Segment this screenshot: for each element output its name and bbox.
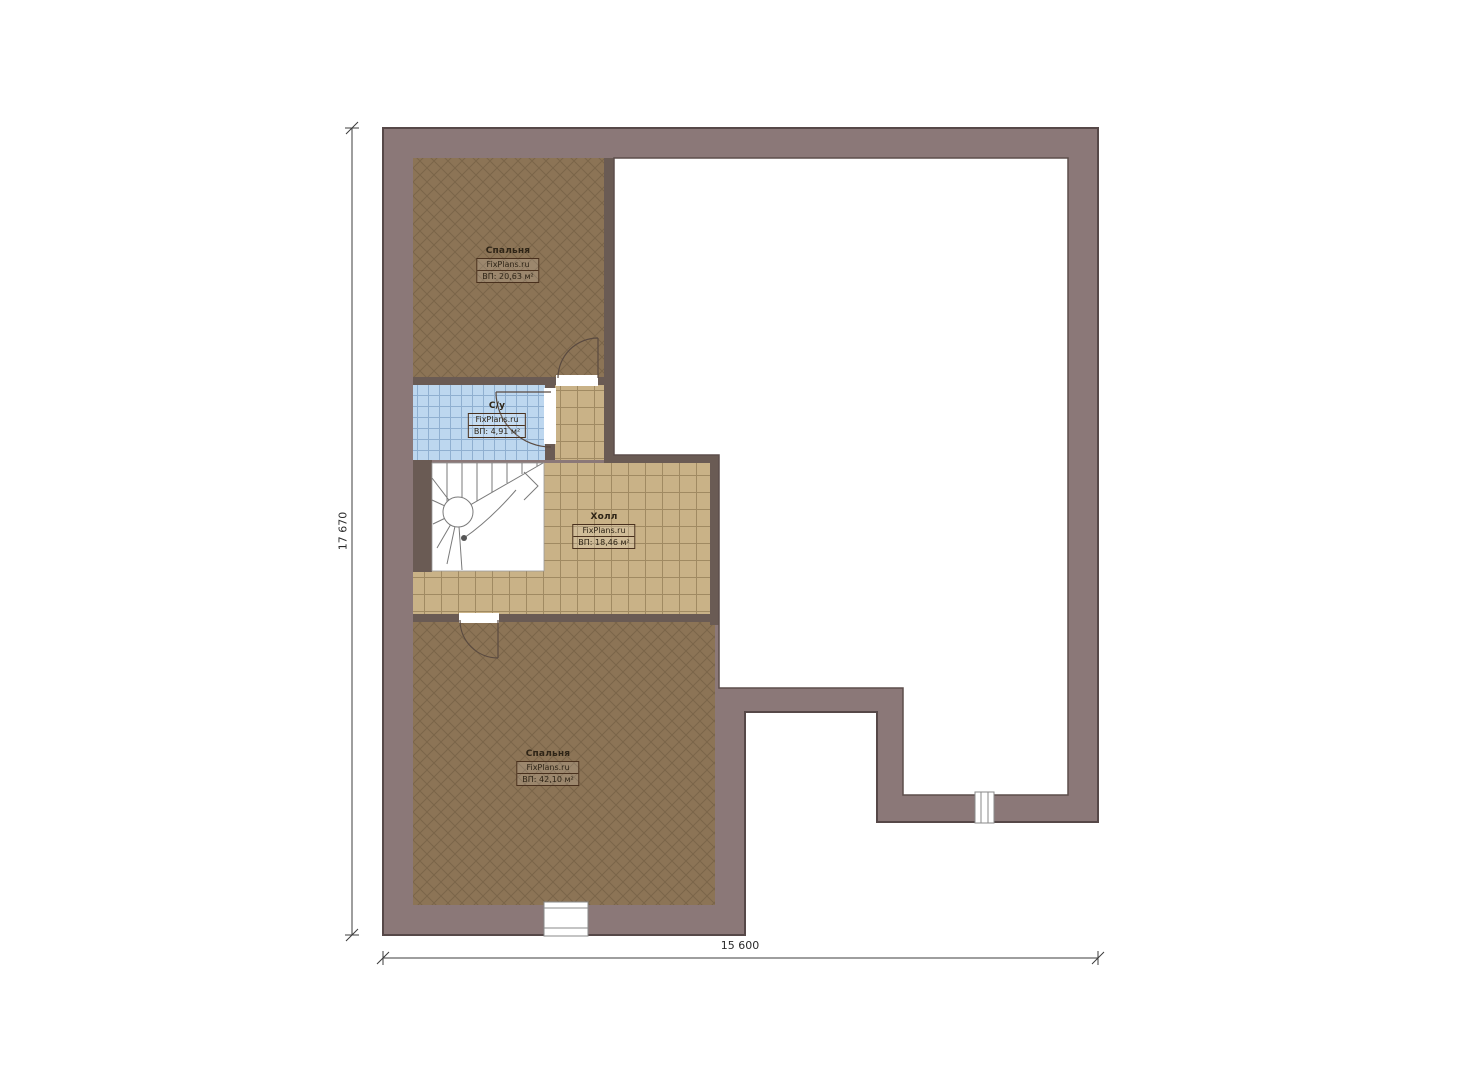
watermark-fixplans: FixPlans.ru — [573, 525, 634, 537]
room-area: ВП: 18,46 м² — [573, 537, 634, 548]
room-name: Холл — [572, 512, 635, 522]
room-name: Спальня — [516, 749, 579, 759]
dimension-line-horizontal — [377, 951, 1104, 965]
room-label-bathroom: С/у FixPlans.ru ВП: 4,91 м² — [468, 401, 526, 438]
room-info-box: FixPlans.ru ВП: 18,46 м² — [572, 524, 635, 549]
floor-plan-canvas: Спальня FixPlans.ru ВП: 20,63 м² С/у Fix… — [0, 0, 1474, 1080]
stairs-start-dot — [461, 535, 467, 541]
room-area: ВП: 42,10 м² — [517, 774, 578, 785]
void-bottom-window — [975, 792, 994, 823]
room-info-box: FixPlans.ru ВП: 20,63 м² — [476, 258, 539, 283]
room-label-upper-bedroom: Спальня FixPlans.ru ВП: 20,63 м² — [476, 246, 539, 283]
room-name: Спальня — [476, 246, 539, 256]
room-label-hall: Холл FixPlans.ru ВП: 18,46 м² — [572, 512, 635, 549]
watermark-fixplans: FixPlans.ru — [477, 259, 538, 271]
room-label-lower-bedroom: Спальня FixPlans.ru ВП: 42,10 м² — [516, 749, 579, 786]
floor-plan-drawing — [0, 0, 1474, 1080]
watermark-fixplans: FixPlans.ru — [517, 762, 578, 774]
room-info-box: FixPlans.ru ВП: 4,91 м² — [468, 413, 526, 438]
dimension-height-label: 17 670 — [337, 512, 350, 551]
dimension-width-label: 15 600 — [721, 939, 760, 952]
watermark-fixplans: FixPlans.ru — [469, 414, 525, 426]
room-area: ВП: 4,91 м² — [469, 426, 525, 437]
hall-corridor-floor — [555, 385, 604, 460]
room-info-box: FixPlans.ru ВП: 42,10 м² — [516, 761, 579, 786]
room-name: С/у — [468, 401, 526, 411]
lower-bedroom-window — [544, 902, 588, 936]
room-area: ВП: 20,63 м² — [477, 271, 538, 282]
